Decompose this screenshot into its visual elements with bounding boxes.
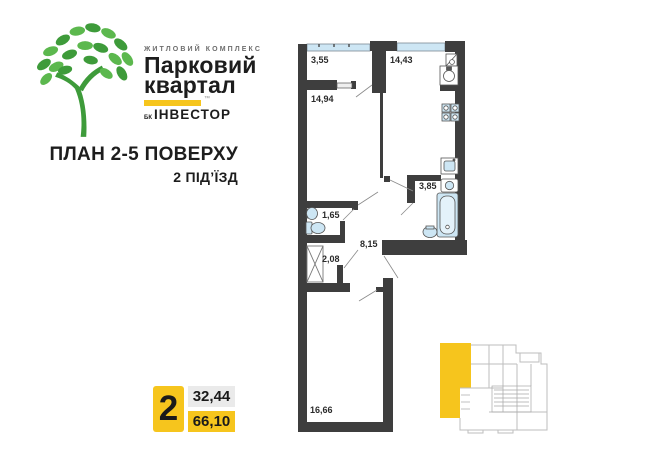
room-label-closet: 2,08 <box>322 254 340 264</box>
bathroom-door-leaf <box>401 203 413 215</box>
vent-icon <box>446 54 457 66</box>
floor-plan-page: { "logo": { "complex_type": "ЖИТЛОВИЙ КО… <box>0 0 650 460</box>
entry-door-leaf <box>384 256 398 278</box>
wc-sink-icon <box>307 208 318 220</box>
washing-machine-icon <box>441 158 458 174</box>
balcony-window <box>307 44 370 51</box>
mini-plan-highlight <box>440 343 471 418</box>
mini-plan <box>440 343 547 433</box>
closet-door-leaf <box>344 250 358 268</box>
balcony-door-sill <box>337 83 352 88</box>
balcony-door-leaf <box>356 85 372 97</box>
bathroom-sink-icon <box>441 179 458 192</box>
room-label-wc: 1,65 <box>322 210 340 220</box>
door-swings <box>343 85 413 301</box>
bedroom-door-leaf <box>358 192 378 205</box>
kitchen-sink-icon <box>440 66 458 85</box>
living-room-door-leaf <box>359 290 377 301</box>
wc-door-leaf <box>343 209 354 220</box>
pedestal-sink-icon <box>423 226 437 238</box>
floor-plan: 3,55 14,94 14,43 1,65 3,85 8,15 2,08 16,… <box>0 0 650 460</box>
room-label-living: 16,66 <box>310 405 333 415</box>
room-label-bedroom: 14,94 <box>311 94 334 104</box>
room-label-balcony: 3,55 <box>311 55 329 65</box>
mini-plan-outline <box>460 345 547 433</box>
kitchen-window <box>397 43 445 51</box>
toilet-icon <box>306 222 325 234</box>
wardrobe-icon <box>307 246 323 282</box>
room-label-kitchen: 14,43 <box>390 55 413 65</box>
room-label-hallway: 8,15 <box>360 239 378 249</box>
bathtub-icon <box>437 193 458 237</box>
mini-plan-core <box>461 386 531 412</box>
room-label-bathroom: 3,85 <box>419 181 437 191</box>
